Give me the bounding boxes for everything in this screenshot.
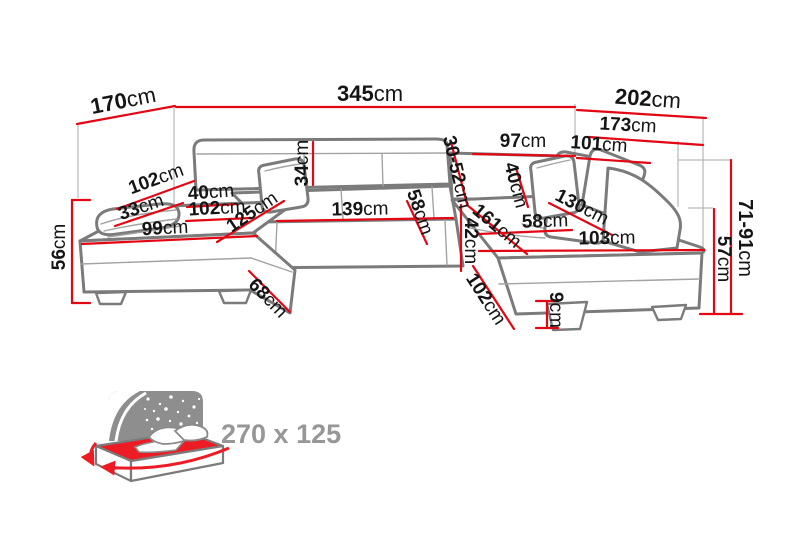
dimension-label-platform-height: 57cm bbox=[714, 236, 735, 282]
dimension-label-middle-seat-width: 139cm bbox=[331, 198, 388, 220]
dimension-label-left-front-width: 99cm bbox=[141, 216, 189, 239]
dimension-label-back-section-width: 97cm bbox=[500, 131, 546, 152]
sleeping-area-label: 270 x 125 bbox=[221, 419, 341, 449]
dimension-label-left-arm-height: 56cm bbox=[49, 224, 70, 270]
diagram-canvas: 345cm 170cm 202cm 173cm 101cm 97cm 30-52… bbox=[0, 0, 800, 533]
dimension-label-total-width: 345cm bbox=[337, 81, 403, 106]
sofa-dimension-diagram: 345cm 170cm 202cm 173cm 101cm 97cm 30-52… bbox=[0, 0, 800, 533]
dimension-label-right-front-width: 103cm bbox=[578, 227, 635, 249]
sofa-leg bbox=[219, 290, 251, 303]
dimension-label-backrest-height: 34cm bbox=[292, 140, 313, 186]
dimension-label-right-seat-width: 58cm bbox=[521, 210, 568, 233]
sofa-bed-icon bbox=[91, 391, 229, 481]
sofa-leg bbox=[96, 292, 126, 304]
sofa-leg bbox=[652, 305, 686, 320]
dimension-label-leg-height: 9cm bbox=[546, 292, 567, 328]
dimension-label-right-inner-width: 101cm bbox=[570, 132, 628, 157]
dimension-label-right-side-depth: 202cm bbox=[614, 83, 682, 113]
dimension-label-seat-front-height: 42cm bbox=[461, 218, 482, 264]
dimension-label-adjustable-back-height: 71-91cm bbox=[734, 199, 756, 277]
dimension-label-left-side-depth: 170cm bbox=[88, 81, 158, 118]
